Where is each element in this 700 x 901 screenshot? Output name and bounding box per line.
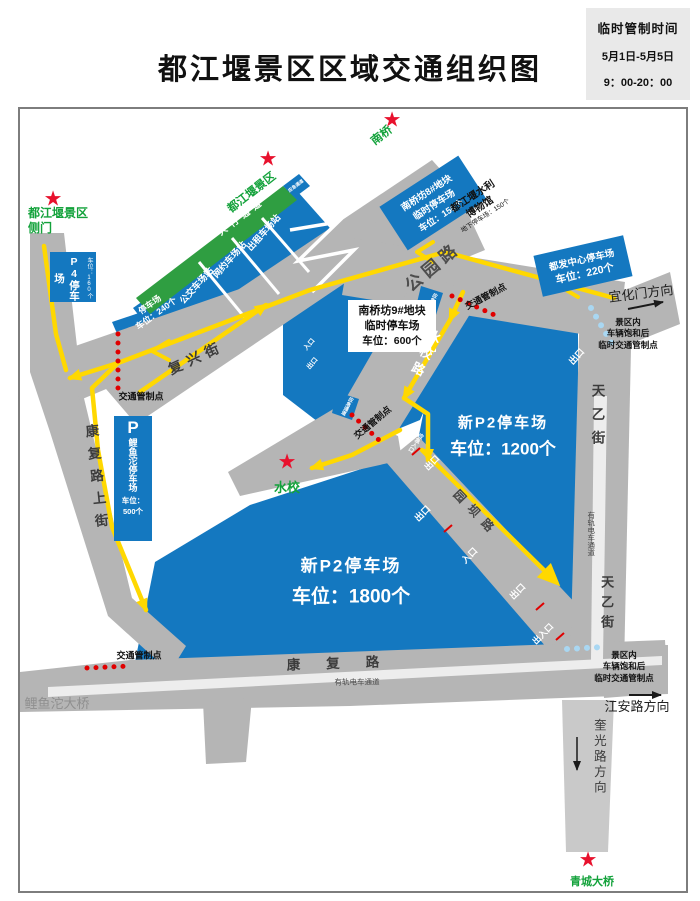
- label-qingcheng-bridge: 青城大桥: [570, 876, 614, 890]
- nq9-capacity: 车位：600个: [358, 334, 425, 348]
- parking-p2-1800-label: 新P2停车场 车位：1800个: [292, 552, 410, 613]
- star-icon: ★: [278, 452, 297, 473]
- liyutuo-cap1: 车位：: [122, 495, 145, 506]
- star-icon: ★: [259, 149, 278, 170]
- p2-1800-name: 新P2停车场: [292, 552, 410, 581]
- label-shuixiao: 水校: [274, 480, 300, 496]
- liyutuo-cap2: 500个: [123, 506, 143, 517]
- tram-label-right: 有轨电车通道: [586, 512, 595, 557]
- saturation-line3: 临时交通管制点: [598, 340, 658, 351]
- road-kuiguang: [562, 700, 614, 852]
- p2-1200-name: 新P2停车场: [450, 411, 556, 435]
- direction-jiangan: 江安路方向: [604, 699, 669, 715]
- saturation-line2: 车辆饱和后: [598, 328, 658, 339]
- p2-1800-capacity: 车位：1800个: [292, 581, 410, 613]
- parking-liyutuo-box: P 鲤鱼沱停车场 车位： 500个: [114, 416, 152, 541]
- direction-kuiguang: 奎光路方向: [590, 718, 606, 796]
- saturation-note-1: 景区内 车辆饱和后 临时交通管制点: [598, 317, 658, 351]
- control-point-label-1: 交通管制点: [118, 391, 163, 402]
- control-point-label-4: 交通管制点: [116, 650, 161, 661]
- road-label-tianyi-upper: 天乙街: [588, 384, 605, 455]
- tram-label-bottom: 有轨电车通道: [335, 677, 380, 686]
- p4-capacity: 车位：160个: [85, 254, 94, 302]
- saturation-line2: 车辆饱和后: [594, 661, 654, 672]
- p4-name: P4停车场: [52, 254, 82, 302]
- saturation-line1: 景区内: [594, 650, 654, 661]
- liyutuo-p-icon: P: [127, 419, 138, 438]
- road-south-stub: [203, 698, 252, 764]
- label-side-gate: 都江堰景区 侧门: [28, 206, 88, 236]
- side-gate-line1: 都江堰景区: [28, 206, 88, 221]
- nq9-line2: 临时停车场: [358, 319, 425, 334]
- side-gate-line2: 侧门: [28, 221, 88, 236]
- parking-p2-1200-label: 新P2停车场 车位：1200个: [450, 411, 556, 462]
- label-liyutuo-bridge: 鲤鱼沱大桥: [24, 696, 89, 712]
- road-label-tianyi-lower: 天乙街: [598, 575, 614, 635]
- saturation-line1: 景区内: [598, 317, 658, 328]
- parking-nq9-label: 南桥坊9#地块 临时停车场 车位：600个: [358, 304, 425, 348]
- star-icon: ★: [579, 850, 598, 871]
- parking-p4-box: P4停车场 车位：160个: [50, 252, 96, 302]
- nq9-line1: 南桥坊9#地块: [358, 304, 425, 319]
- p2-1200-capacity: 车位：1200个: [450, 435, 556, 462]
- saturation-line3: 临时交通管制点: [594, 673, 654, 684]
- liyutuo-name: 鲤鱼沱停车场: [127, 438, 140, 492]
- saturation-note-2: 景区内 车辆饱和后 临时交通管制点: [594, 650, 654, 684]
